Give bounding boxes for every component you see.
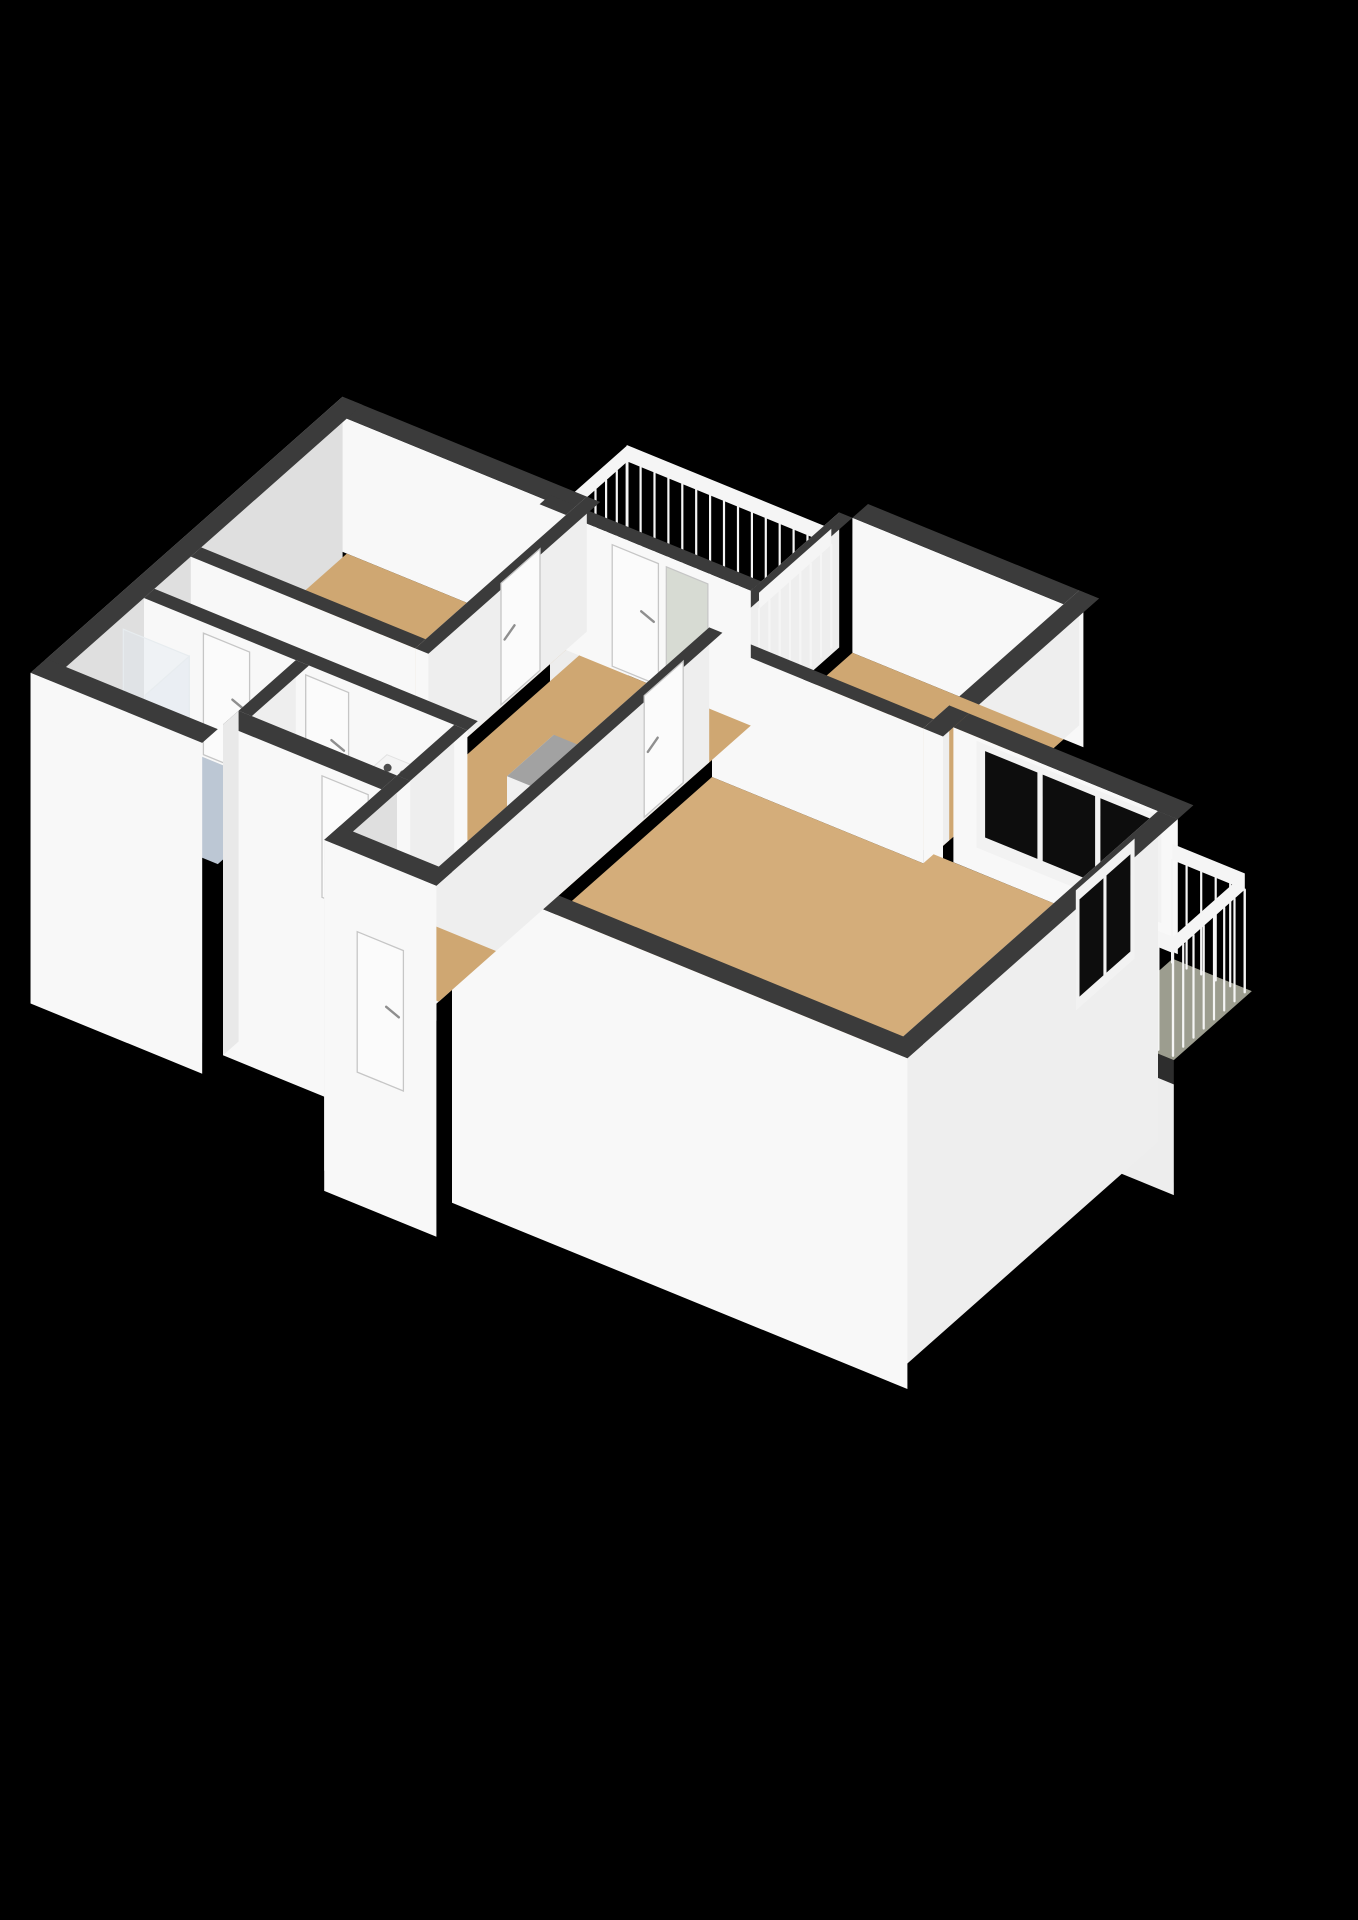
south-wall-bathroom [31, 673, 203, 1074]
door-front [357, 932, 403, 1091]
floor-plan-3d-render [0, 0, 1358, 1920]
screenshot-root [0, 0, 1358, 1920]
floor-plan-figure [0, 0, 1358, 1920]
south-step-face [223, 711, 239, 1056]
door-balcony-northwest [612, 545, 658, 685]
